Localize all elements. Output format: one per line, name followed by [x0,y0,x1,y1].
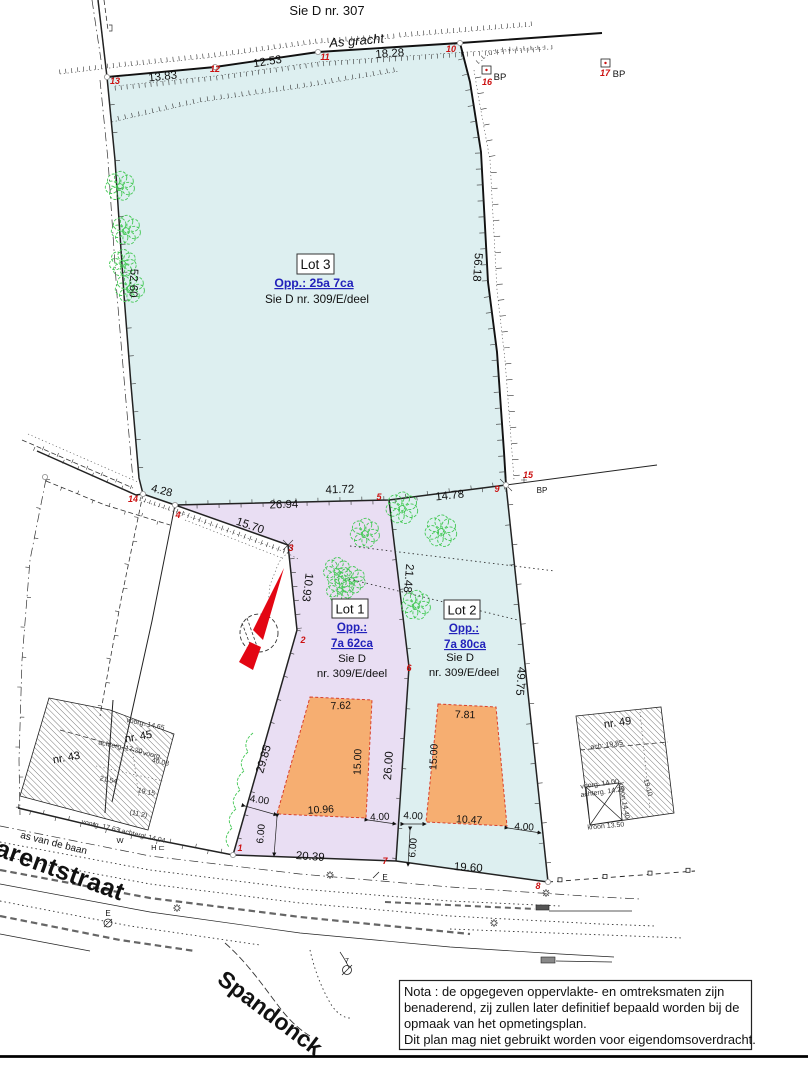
svg-text:15: 15 [523,470,534,480]
svg-text:9: 9 [494,484,499,494]
svg-text:Nota : de opgegeven oppervlakt: Nota : de opgegeven oppervlakte- en omtr… [404,984,724,999]
svg-text:19.60: 19.60 [453,861,483,875]
svg-text:E: E [105,909,110,918]
svg-text:49.75: 49.75 [513,666,527,696]
svg-text:BP: BP [494,72,507,83]
svg-text:8: 8 [535,881,540,891]
svg-text:26.00: 26.00 [382,751,396,781]
svg-text:18.28: 18.28 [375,47,405,61]
svg-text:BP: BP [613,69,626,80]
svg-text:7a 62ca: 7a 62ca [331,637,373,650]
svg-text:16: 16 [482,77,493,87]
svg-text:BP: BP [537,486,548,495]
svg-text:opmaak van het opmetingsplan.: opmaak van het opmetingsplan. [404,1016,587,1031]
svg-text:4.00: 4.00 [514,822,534,834]
svg-text:26.94: 26.94 [269,498,299,511]
svg-text:14: 14 [128,494,138,504]
svg-text:E: E [382,873,387,882]
svg-text:7.62: 7.62 [330,699,351,712]
svg-text:4.00: 4.00 [370,811,390,823]
svg-text:Sie D nr. 307: Sie D nr. 307 [289,3,364,18]
svg-text:7: 7 [345,958,349,965]
svg-text:Opp.:: Opp.: [337,621,367,634]
svg-text:10.47: 10.47 [456,813,483,826]
svg-text:21.48: 21.48 [401,563,415,593]
svg-text:12: 12 [210,64,220,74]
svg-text:1: 1 [237,843,242,853]
svg-text:11: 11 [320,52,329,62]
svg-text:Dit plan mag niet gebruikt wor: Dit plan mag niet gebruikt worden voor e… [404,1032,756,1047]
svg-text:Sie D: Sie D [446,652,474,664]
svg-text:15.00: 15.00 [427,743,440,770]
svg-text:6.00: 6.00 [255,823,268,844]
svg-text:Lot 3: Lot 3 [300,257,330,272]
svg-text:6.00: 6.00 [407,837,420,858]
svg-text:20.39: 20.39 [295,850,325,864]
svg-text:15.00: 15.00 [352,748,365,775]
svg-text:7a 80ca: 7a 80ca [444,638,486,651]
svg-text:nr. 309/E/deel: nr. 309/E/deel [317,668,387,680]
svg-text:4: 4 [174,510,180,520]
svg-text:7.81: 7.81 [455,709,476,722]
svg-text:17: 17 [600,68,611,78]
svg-text:W: W [116,836,124,845]
svg-text:13: 13 [110,76,120,86]
svg-text:Lot 1: Lot 1 [336,602,365,617]
svg-text:Sie D: Sie D [338,653,366,665]
svg-text:52.60: 52.60 [126,269,139,298]
svg-text:nr. 309/E/deel: nr. 309/E/deel [429,667,499,679]
svg-text:Opp.:: Opp.: [449,622,479,635]
svg-text:10: 10 [446,44,456,54]
svg-text:Lot 2: Lot 2 [448,603,477,618]
svg-text:4.00: 4.00 [403,811,423,823]
svg-text:41.72: 41.72 [325,484,354,497]
svg-text:10.96: 10.96 [307,803,334,816]
svg-text:56.18: 56.18 [470,252,484,282]
svg-text:2: 2 [299,635,305,645]
svg-text:Opp.: 25a 7ca: Opp.: 25a 7ca [274,276,353,290]
svg-text:Sie D nr. 309/E/deel: Sie D nr. 309/E/deel [265,293,369,306]
svg-text:3: 3 [288,543,293,553]
svg-text:benaderend, zij zullen later d: benaderend, zij zullen later definitief … [404,1000,739,1015]
